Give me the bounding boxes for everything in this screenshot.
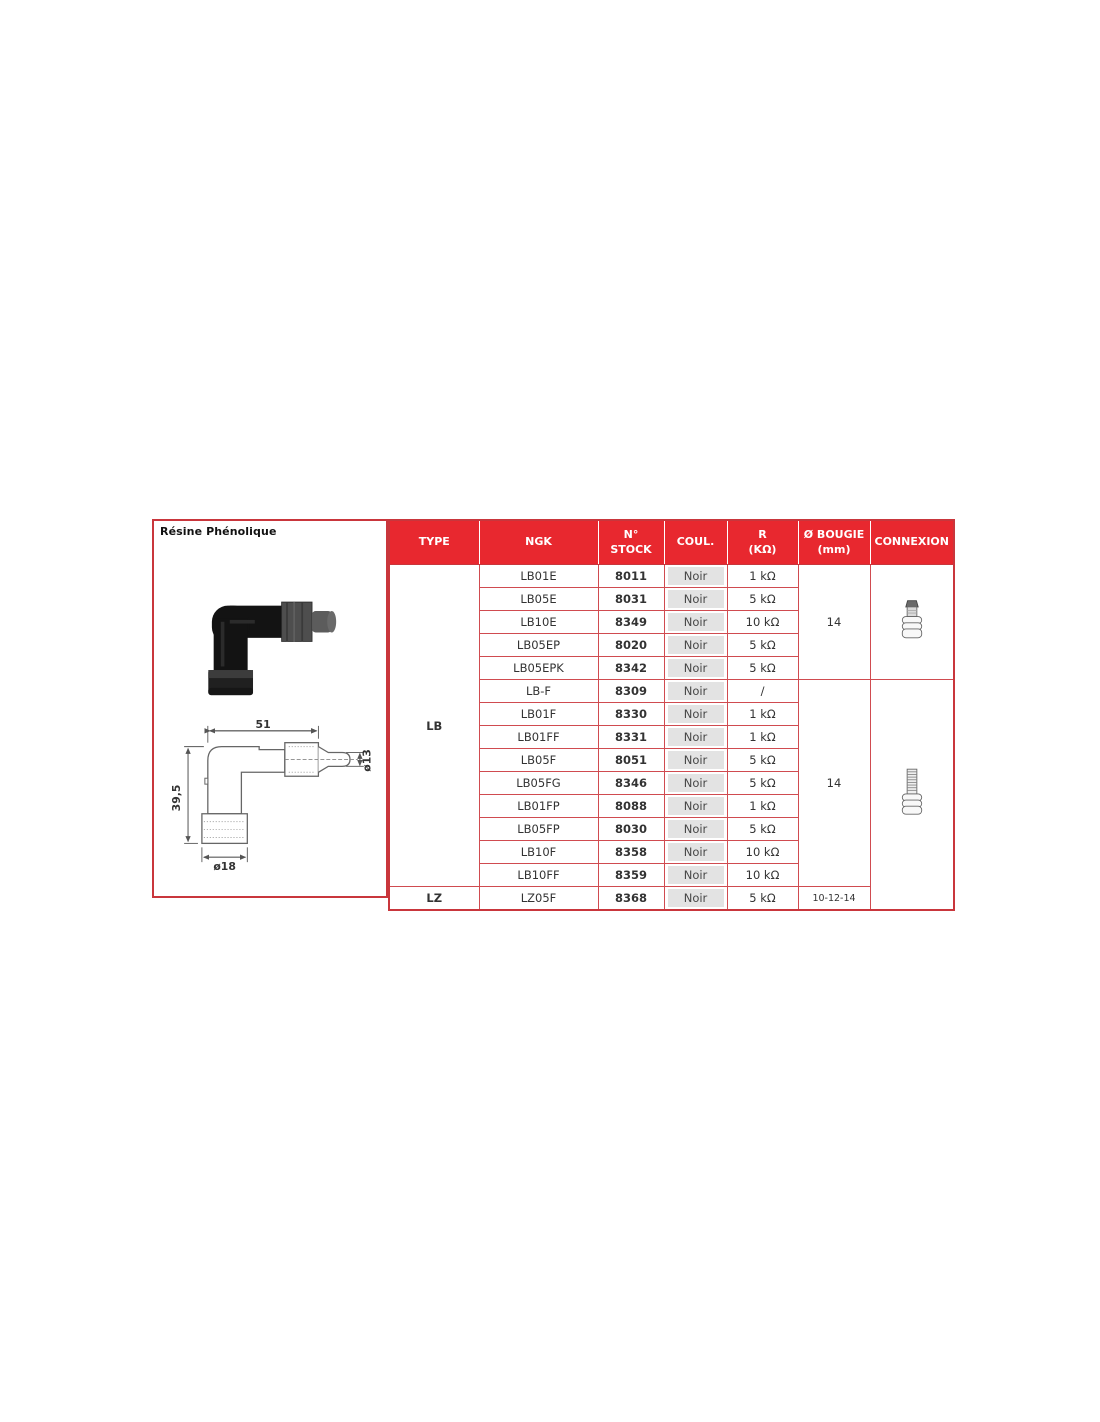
dim-d18: ø18	[213, 860, 236, 873]
ngk-code: LB01E	[479, 565, 598, 588]
terminal-nut-icon	[897, 597, 927, 645]
ngk-code: LB05E	[479, 588, 598, 611]
colour-cell: Noir	[664, 565, 727, 588]
stock-number: 8051	[598, 749, 664, 772]
resistance-value: 10 kΩ	[727, 864, 798, 887]
type-group-lb: LB	[389, 565, 479, 887]
resistance-value: 5 kΩ	[727, 818, 798, 841]
col-header-bougie: Ø BOUGIE(mm)	[798, 520, 870, 565]
colour-cell: Noir	[664, 657, 727, 680]
resistance-value: 10 kΩ	[727, 841, 798, 864]
catalog-sheet: Résine Phénolique	[152, 519, 955, 911]
stock-number: 8359	[598, 864, 664, 887]
stock-number: 8088	[598, 795, 664, 818]
ngk-code: LB05F	[479, 749, 598, 772]
colour-cell: Noir	[664, 611, 727, 634]
colour-cell: Noir	[664, 795, 727, 818]
col-header-type: TYPE	[389, 520, 479, 565]
colour-cell: Noir	[664, 588, 727, 611]
stock-number: 8030	[598, 818, 664, 841]
colour-cell: Noir	[664, 680, 727, 703]
header-row: TYPE NGK N°STOCK COUL. R(KΩ) Ø BOUGIE(mm…	[389, 520, 954, 565]
resistance-value: 5 kΩ	[727, 657, 798, 680]
panel-title: Résine Phénolique	[154, 521, 386, 542]
col-header-ngk: NGK	[479, 520, 598, 565]
bougie-diameter-group1: 14	[798, 565, 870, 680]
resistance-value: /	[727, 680, 798, 703]
resistance-value: 5 kΩ	[727, 588, 798, 611]
colour-cell: Noir	[664, 703, 727, 726]
resistance-value: 5 kΩ	[727, 887, 798, 911]
ngk-code: LB01FF	[479, 726, 598, 749]
stock-number: 8331	[598, 726, 664, 749]
resistance-value: 5 kΩ	[727, 749, 798, 772]
stock-number: 8330	[598, 703, 664, 726]
dim-d13: ø13	[361, 749, 374, 772]
ngk-code: LB05FG	[479, 772, 598, 795]
stock-number: 8309	[598, 680, 664, 703]
ngk-code: LB-F	[479, 680, 598, 703]
connexion-group2	[870, 680, 954, 911]
table-row: LZ LZ05F 8368 Noir 5 kΩ 10-12-14	[389, 887, 954, 911]
colour-cell: Noir	[664, 749, 727, 772]
col-header-coul: COUL.	[664, 520, 727, 565]
stock-number: 8368	[598, 887, 664, 911]
col-header-connexion: CONNEXION	[870, 520, 954, 565]
resistance-value: 5 kΩ	[727, 634, 798, 657]
stock-number: 8020	[598, 634, 664, 657]
ngk-code: LB10E	[479, 611, 598, 634]
stock-number: 8011	[598, 565, 664, 588]
dim-39-5: 39,5	[170, 785, 183, 812]
stock-number: 8349	[598, 611, 664, 634]
dim-51: 51	[256, 718, 271, 731]
ngk-code: LB05EPK	[479, 657, 598, 680]
stock-number: 8358	[598, 841, 664, 864]
colour-cell: Noir	[664, 841, 727, 864]
colour-cell: Noir	[664, 818, 727, 841]
ngk-code: LB05FP	[479, 818, 598, 841]
resistance-value: 10 kΩ	[727, 611, 798, 634]
elbow-cap-drawing-icon: 51 39,5 ø13 ø18	[168, 717, 376, 873]
col-header-stock: N°STOCK	[598, 520, 664, 565]
ngk-code: LB10F	[479, 841, 598, 864]
illustration-panel: Résine Phénolique	[152, 519, 388, 898]
dimension-drawing: 51 39,5 ø13 ø18	[168, 717, 376, 877]
colour-cell: Noir	[664, 864, 727, 887]
spark-plug-cap-photo	[194, 591, 346, 703]
ngk-code: LZ05F	[479, 887, 598, 911]
ngk-code: LB01F	[479, 703, 598, 726]
resistance-value: 1 kΩ	[727, 703, 798, 726]
table-row: LB LB01E 8011 Noir 1 kΩ 14	[389, 565, 954, 588]
bougie-diameter-group3: 10-12-14	[798, 887, 870, 911]
resistance-value: 1 kΩ	[727, 795, 798, 818]
resistance-value: 5 kΩ	[727, 772, 798, 795]
resistance-value: 1 kΩ	[727, 565, 798, 588]
colour-cell: Noir	[664, 634, 727, 657]
threaded-stud-icon	[897, 766, 927, 820]
stock-number: 8342	[598, 657, 664, 680]
ngk-code: LB10FF	[479, 864, 598, 887]
stock-number: 8346	[598, 772, 664, 795]
stock-number: 8031	[598, 588, 664, 611]
connexion-group1	[870, 565, 954, 680]
colour-cell: Noir	[664, 726, 727, 749]
resistance-value: 1 kΩ	[727, 726, 798, 749]
elbow-cap-photo-icon	[194, 591, 346, 699]
colour-cell: Noir	[664, 772, 727, 795]
ngk-code: LB05EP	[479, 634, 598, 657]
ngk-code: LB01FP	[479, 795, 598, 818]
bougie-diameter-group2: 14	[798, 680, 870, 887]
col-header-r: R(KΩ)	[727, 520, 798, 565]
spec-table: TYPE NGK N°STOCK COUL. R(KΩ) Ø BOUGIE(mm…	[388, 519, 955, 911]
type-group-lz: LZ	[389, 887, 479, 911]
colour-cell: Noir	[664, 887, 727, 911]
